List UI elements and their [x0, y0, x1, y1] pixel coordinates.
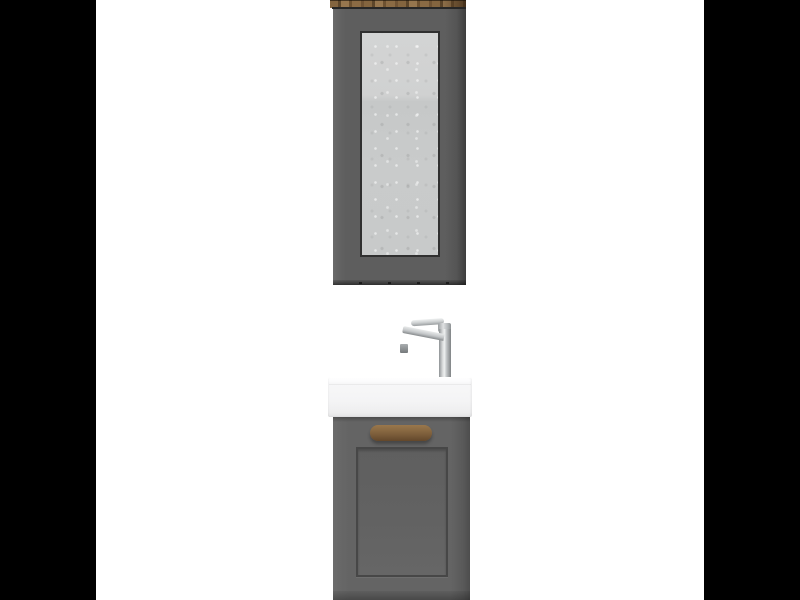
product-photo-stage — [0, 0, 800, 600]
door-recessed-panel — [356, 447, 448, 577]
ceramic-washbasin — [328, 377, 472, 417]
faucet-aerator-tip — [400, 344, 408, 353]
vanity-top-shadow — [333, 417, 470, 422]
wooden-door-handle — [370, 425, 432, 441]
washbasin-rim-line — [329, 384, 471, 385]
vanity-cabinet — [333, 417, 470, 600]
vanity-bottom-edge — [333, 591, 470, 600]
